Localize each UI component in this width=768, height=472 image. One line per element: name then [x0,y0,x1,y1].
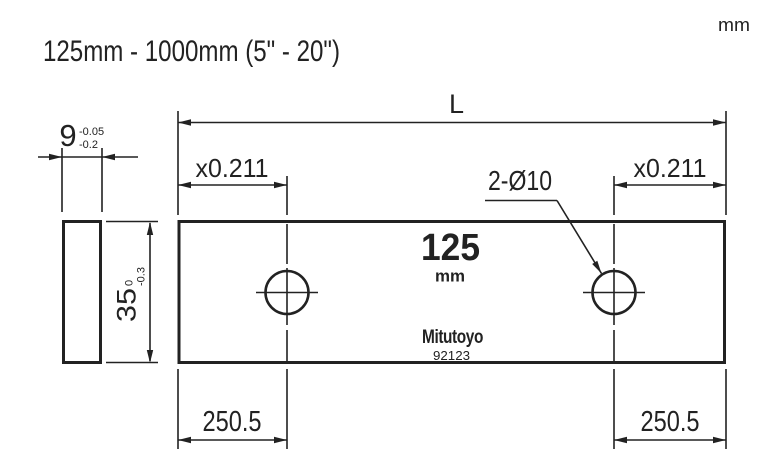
arrowhead-left-icon [614,182,627,188]
length-dimension: L [178,89,726,215]
left-offset-dimension: x0.211 [178,153,287,215]
right-offset-dimension: x0.211 [614,153,726,215]
height-tolerance-lower: -0.3 [136,267,148,286]
technical-drawing-canvas: 125mm - 1000mm (5" - 20") mm L x0.211 x0… [0,0,768,472]
height-label-group: 35 0 -0.3 [112,267,148,322]
arrowhead-right-icon [274,182,287,188]
thickness-value: 9 [59,118,76,153]
thickness-tolerance-upper: -0.05 [79,126,104,138]
right-offset-label: x0.211 [634,153,707,183]
range-title: 125mm - 1000mm (5" - 20") [43,35,340,68]
arrowhead-left-icon [614,437,627,443]
left-hole-offset-dimension: 250.5 [178,369,287,449]
arrowhead-up-icon [147,222,153,235]
arrowhead-right-icon [713,119,726,125]
height-value: 35 [112,288,142,322]
gauge-block-drawing-sheet: 125mm - 1000mm (5" - 20") mm L x0.211 x0… [0,0,768,472]
arrowhead-down-icon [147,350,153,363]
right-hole-offset-label: 250.5 [641,406,700,438]
holes-callout: 2-Ø10 [485,165,602,274]
side-view-outline [64,222,101,363]
arrowhead-left-icon [178,437,191,443]
thickness-dimension: 9 -0.05 -0.2 [38,118,138,212]
height-tolerance-upper: 0 [124,280,136,286]
arrowhead-right-icon [49,154,62,160]
arrowhead-left-icon [178,119,191,125]
arrowhead-left-icon [178,182,191,188]
arrowhead-leader-icon [592,261,601,274]
right-hole-offset-dimension: 250.5 [614,369,726,449]
block-marking: 125 mm Mitutoyo 92123 [421,227,483,363]
marking-size-unit: mm [435,267,465,286]
unit-note: mm [718,15,750,35]
brand-logo: Mitutoyo [422,327,483,348]
left-hole [256,224,318,361]
marking-code: 92123 [433,348,470,363]
arrowhead-left-icon [102,154,115,160]
marking-size-value: 125 [421,227,480,269]
arrowhead-right-icon [713,437,726,443]
holes-label: 2-Ø10 [488,165,552,196]
right-hole [583,224,645,361]
thickness-tolerance-lower: -0.2 [79,139,98,151]
arrowhead-right-icon [274,437,287,443]
left-hole-offset-label: 250.5 [203,406,262,438]
height-dimension: 35 0 -0.3 [106,222,158,364]
arrowhead-right-icon [713,182,726,188]
left-offset-label: x0.211 [196,153,269,183]
length-label: L [449,89,464,119]
